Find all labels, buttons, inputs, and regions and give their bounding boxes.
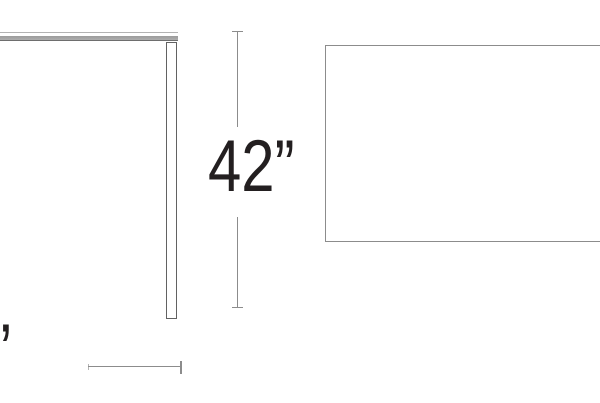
- tabletop-top-surface-line: [0, 32, 178, 33]
- height-dimension-label: 42”: [208, 130, 295, 203]
- depth-dimension-line: [88, 366, 181, 367]
- depth-dimension-right-tick: [180, 361, 181, 374]
- depth-dimension-label-fragment: ”: [0, 314, 11, 387]
- table-leg: [166, 42, 177, 319]
- table-top-view-outline: [325, 45, 600, 242]
- tabletop-edge-band: [0, 36, 178, 42]
- dimension-diagram: 42” ”: [0, 0, 600, 403]
- height-dimension-upper-line: [237, 31, 238, 127]
- height-dimension-lower-line: [237, 217, 238, 307]
- height-dimension-bottom-tick: [232, 307, 243, 308]
